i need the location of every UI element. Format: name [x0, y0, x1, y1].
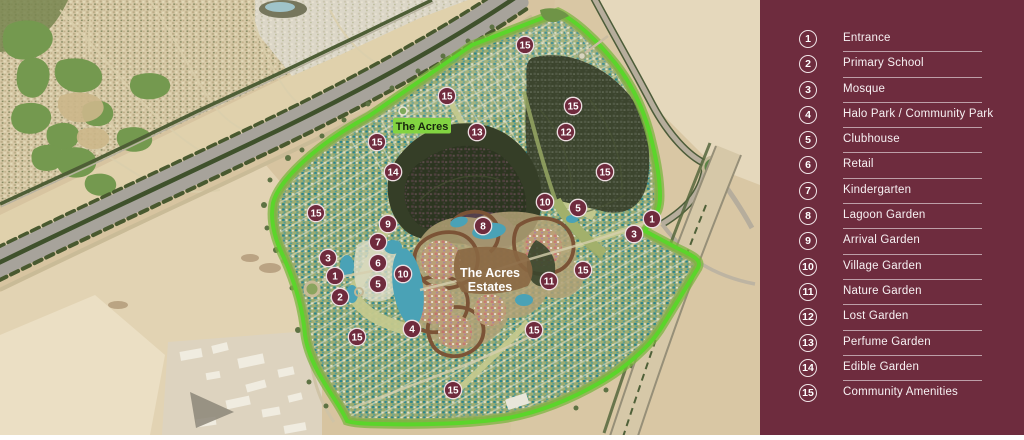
- svg-text:13: 13: [471, 127, 483, 138]
- svg-text:15: 15: [310, 208, 322, 219]
- svg-text:11: 11: [544, 276, 555, 287]
- svg-text:9: 9: [385, 219, 391, 230]
- svg-text:15: 15: [599, 167, 611, 178]
- svg-text:The Acres: The Acres: [460, 266, 520, 280]
- svg-text:15: 15: [351, 332, 363, 343]
- svg-text:15: 15: [528, 325, 540, 336]
- svg-text:15: 15: [371, 137, 383, 148]
- svg-text:6: 6: [375, 258, 381, 269]
- svg-text:15: 15: [519, 40, 531, 51]
- svg-text:15: 15: [441, 91, 453, 102]
- svg-text:2: 2: [337, 292, 343, 303]
- svg-text:The Acres: The Acres: [396, 121, 449, 133]
- svg-text:3: 3: [325, 253, 331, 264]
- svg-text:1: 1: [332, 271, 338, 282]
- svg-text:5: 5: [375, 279, 381, 290]
- svg-text:5: 5: [575, 203, 581, 214]
- svg-text:15: 15: [577, 265, 589, 276]
- svg-text:10: 10: [397, 269, 409, 280]
- svg-text:14: 14: [387, 167, 399, 178]
- svg-text:12: 12: [560, 127, 572, 138]
- svg-text:Estates: Estates: [468, 280, 513, 294]
- svg-text:10: 10: [539, 197, 551, 208]
- svg-text:15: 15: [447, 385, 459, 396]
- svg-text:8: 8: [480, 221, 486, 232]
- svg-text:1: 1: [649, 214, 655, 225]
- svg-text:7: 7: [375, 237, 381, 248]
- svg-text:3: 3: [631, 229, 637, 240]
- svg-text:15: 15: [567, 101, 579, 112]
- svg-text:4: 4: [409, 324, 415, 335]
